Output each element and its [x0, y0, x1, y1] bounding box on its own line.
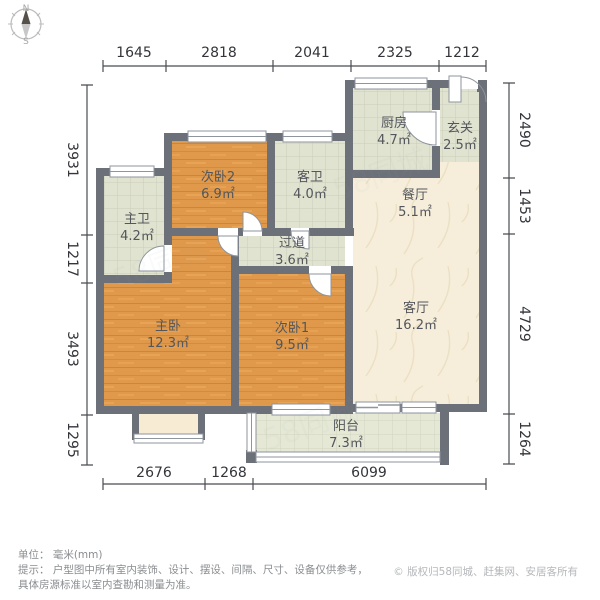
door-opening: [218, 228, 238, 236]
balcony-left-window: [247, 413, 256, 452]
window: [283, 131, 332, 142]
floor-plan-page: 58同城 58同城 58同城: [0, 0, 600, 600]
bottom-dimension-line: [103, 478, 486, 490]
wall: [432, 80, 440, 110]
entry-door-leaf: [449, 76, 461, 102]
window: [355, 78, 427, 89]
bay-window-floor: [139, 414, 198, 436]
tip-note-line2: 具体房源标准以室内查勘和测量为准。: [18, 578, 368, 593]
door-opening: [309, 266, 331, 274]
wall: [440, 404, 449, 465]
wall: [479, 88, 487, 412]
copyright-note: © 版权归58同城、赶集网、安居客所有: [393, 564, 578, 579]
compass-south-label: S: [23, 37, 29, 47]
left-dimension-line: [81, 85, 93, 465]
wall: [231, 236, 239, 414]
compass: N S: [8, 4, 44, 47]
window: [110, 166, 154, 177]
unit-note: 单位： 毫米(mm): [18, 548, 368, 563]
tip-note-line1: 提示： 户型图中所有室内装饰、设计、摆设、间隔、尺寸、设备仅供参考，: [18, 563, 368, 578]
top-dimension-line: [103, 60, 486, 72]
compass-north-label: N: [23, 4, 30, 14]
wall: [267, 133, 275, 236]
wall: [231, 266, 353, 274]
bay-window: [134, 434, 203, 443]
floor-plan-drawing: N S: [0, 0, 600, 600]
balcony-sliding-door: [356, 402, 400, 413]
wall: [96, 406, 237, 414]
wall: [96, 168, 104, 414]
living-dining-floor: [353, 162, 479, 404]
hallway-floor: [239, 236, 345, 266]
window: [402, 402, 436, 413]
right-dimension-line: [503, 83, 515, 464]
window: [188, 131, 266, 142]
footer-notes: 单位： 毫米(mm) 提示： 户型图中所有室内装饰、设计、摆设、间隔、尺寸、设备…: [18, 548, 368, 594]
